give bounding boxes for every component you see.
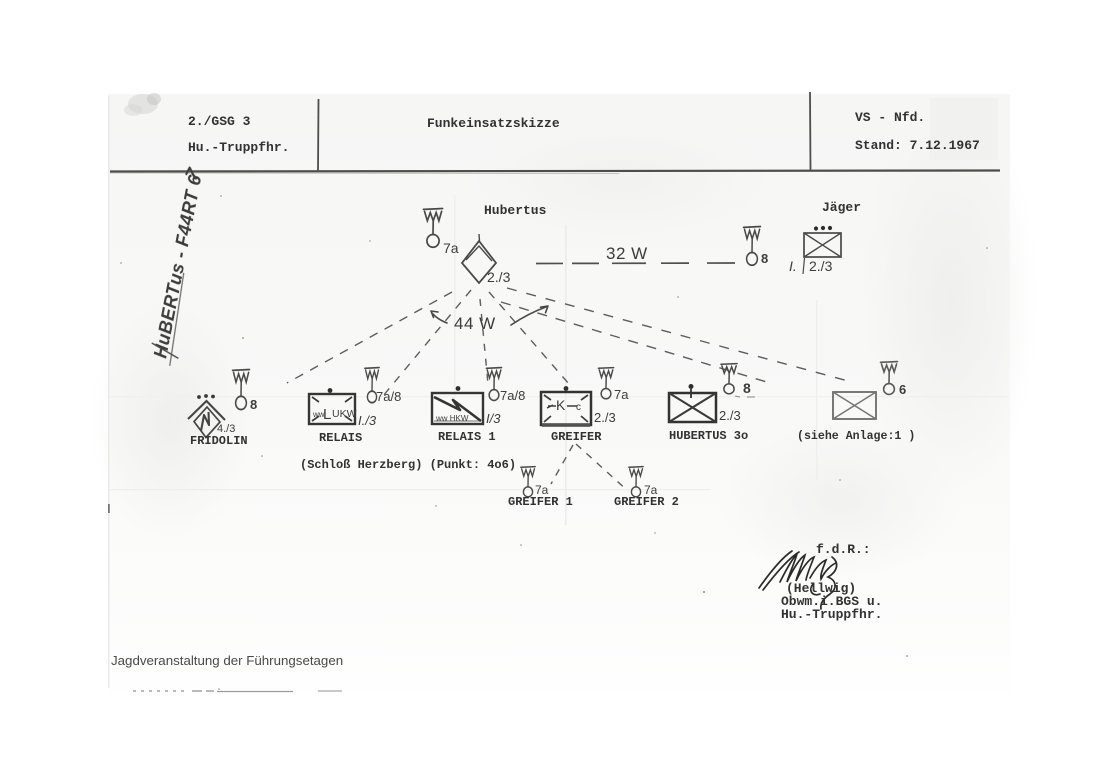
svg-text:2./3: 2./3: [719, 408, 741, 423]
svg-text:Funkeinsatzskizze: Funkeinsatzskizze: [427, 116, 560, 131]
svg-text:Stand: 7.12.1967: Stand: 7.12.1967: [855, 138, 980, 153]
svg-text:HUBERTUS 3o: HUBERTUS 3o: [669, 429, 748, 443]
svg-text:UKW: UKW: [332, 408, 357, 420]
svg-text:2./3: 2./3: [594, 410, 616, 425]
svg-text:RELAIS 1: RELAIS 1: [438, 430, 496, 444]
svg-text:2./3: 2./3: [487, 269, 511, 285]
svg-text:RELAIS: RELAIS: [319, 431, 362, 445]
svg-text:f.d.R.:: f.d.R.:: [816, 542, 871, 557]
svg-text:I/3: I/3: [486, 411, 501, 426]
svg-text:c: c: [576, 402, 581, 413]
svg-text:Hubertus: Hubertus: [484, 203, 547, 218]
svg-text:GREIFER 1: GREIFER 1: [508, 495, 573, 509]
svg-text:8: 8: [250, 397, 257, 412]
svg-text:(Schloß Herzberg) (Punkt: 4o6): (Schloß Herzberg) (Punkt: 4o6): [300, 458, 516, 472]
svg-text:VS - Nfd.: VS - Nfd.: [855, 110, 925, 125]
svg-text:K: K: [556, 397, 566, 413]
svg-text:2./GSG 3: 2./GSG 3: [188, 114, 251, 129]
svg-text:6: 6: [899, 382, 906, 397]
svg-text:7a/8: 7a/8: [376, 389, 401, 404]
svg-text:8: 8: [743, 380, 751, 396]
svg-text:Jäger: Jäger: [822, 200, 861, 215]
svg-text:7a: 7a: [443, 240, 459, 256]
svg-text:Hu.-Truppfhr.: Hu.-Truppfhr.: [781, 607, 882, 622]
svg-text:8: 8: [761, 251, 768, 266]
svg-text:2./3: 2./3: [809, 258, 833, 274]
svg-text:7a/8: 7a/8: [500, 388, 525, 403]
svg-text:44 W: 44 W: [454, 314, 496, 333]
svg-text:L: L: [323, 406, 331, 423]
svg-text:7a: 7a: [614, 387, 629, 402]
svg-text:GREIFER: GREIFER: [551, 430, 602, 444]
svg-text:32 W: 32 W: [606, 244, 648, 263]
svg-text:I./3: I./3: [358, 413, 377, 428]
svg-text:GREIFER 2: GREIFER 2: [614, 495, 679, 509]
svg-text:(siehe Anlage:1 ): (siehe Anlage:1 ): [797, 430, 915, 443]
svg-text:I.: I.: [789, 258, 797, 274]
svg-text:FRIDOLIN: FRIDOLIN: [190, 434, 248, 448]
svg-text:Jagdveranstaltung der Führungs: Jagdveranstaltung der Führungsetagen: [111, 653, 343, 668]
svg-text:ww HKW: ww HKW: [435, 414, 469, 423]
svg-text:Hu.-Truppfhr.: Hu.-Truppfhr.: [188, 140, 289, 155]
